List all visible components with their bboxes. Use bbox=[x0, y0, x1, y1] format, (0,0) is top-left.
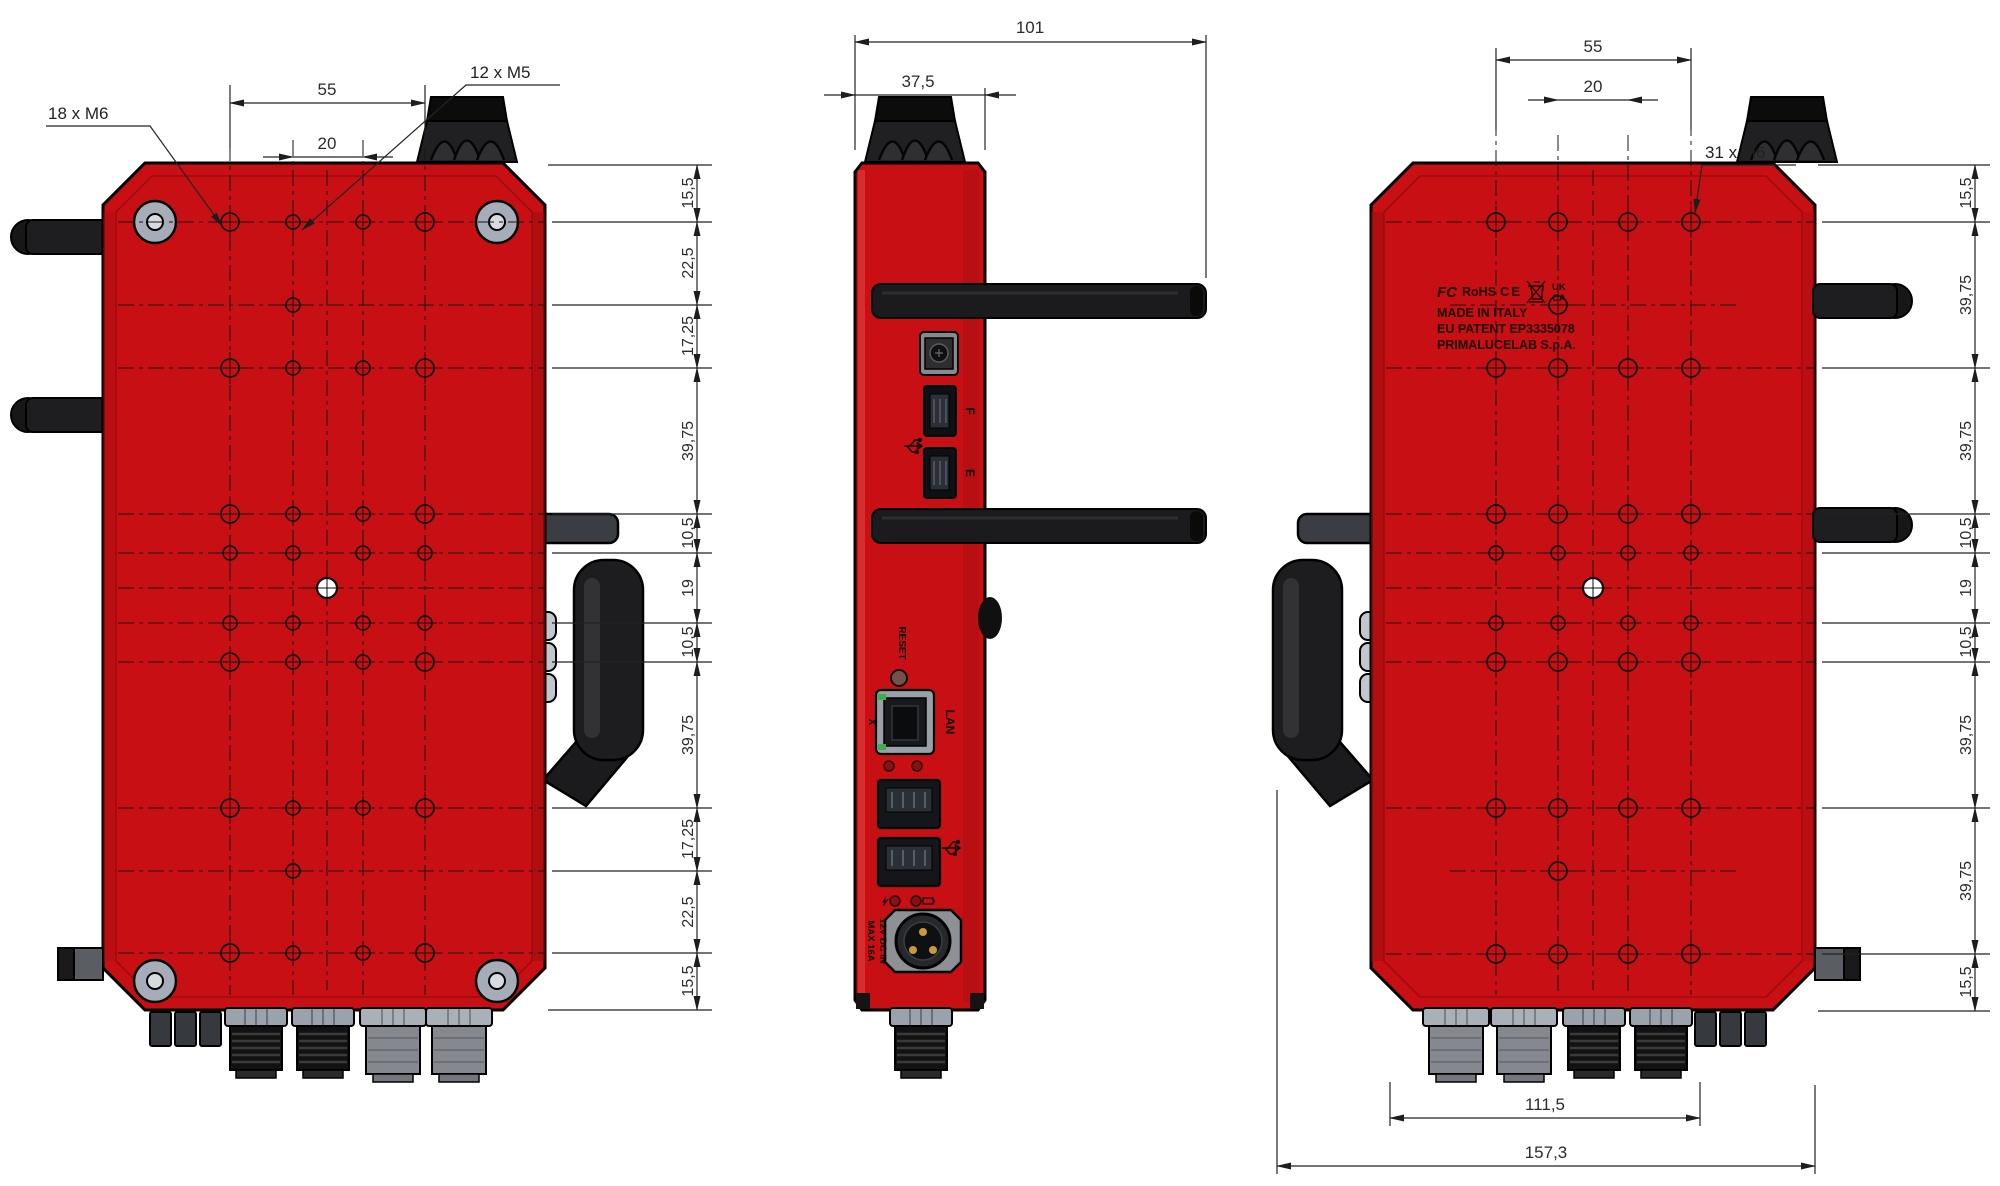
usb-port-label-e: E bbox=[963, 469, 977, 477]
dim-20: 20 bbox=[1584, 77, 1603, 96]
dim-label: 39,75 bbox=[1958, 275, 1975, 315]
edge-notch bbox=[978, 597, 1002, 639]
cert-rohs: RoHS bbox=[1462, 285, 1496, 299]
bottom-connector-side-view bbox=[890, 1008, 952, 1078]
status-led bbox=[884, 761, 894, 771]
usb2-port-1 bbox=[878, 780, 940, 828]
dim-label: 10,5 bbox=[680, 517, 697, 548]
marking-line-2: EU PATENT EP3335078 bbox=[1437, 322, 1575, 336]
dim-label: 19 bbox=[1958, 579, 1975, 597]
reset-button bbox=[891, 670, 907, 686]
dim-label: 10,5 bbox=[1958, 626, 1975, 657]
corner-screw bbox=[476, 960, 518, 1002]
bottom-view: FC RoHS CE UK CA MADE IN ITALY EU PATENT… bbox=[1273, 37, 1990, 1174]
leader-31xM6: 31 x M6 bbox=[1705, 143, 1765, 162]
side-stub-connector bbox=[1815, 948, 1860, 980]
dim-55: 55 bbox=[1584, 37, 1603, 56]
power-label-2: MAX 16A bbox=[865, 920, 876, 961]
dim-111-5: 111,5 bbox=[1525, 1095, 1565, 1114]
antenna-right-1 bbox=[1813, 284, 1912, 318]
dim-label: 15,5 bbox=[680, 177, 697, 208]
dim-label: 39,75 bbox=[1958, 861, 1975, 901]
dim-label: 15,5 bbox=[680, 965, 697, 996]
antenna-left-1 bbox=[11, 220, 110, 254]
dim-37-5: 37,5 bbox=[901, 72, 934, 91]
status-led bbox=[890, 896, 900, 906]
dim-label: 17,25 bbox=[680, 819, 697, 859]
dim-label: 22,5 bbox=[680, 247, 697, 278]
marking-line-3: PRIMALUCELAB S.p.A. bbox=[1437, 338, 1576, 352]
dim-label: 10,5 bbox=[680, 626, 697, 657]
power-label-1: 12V DC IN bbox=[877, 918, 888, 964]
lan-x-label: X bbox=[866, 719, 877, 726]
cert-uk: UK bbox=[1552, 282, 1566, 293]
dim-label: 17,25 bbox=[680, 316, 697, 356]
side-view: F E RESET LAN X bbox=[824, 18, 1206, 1078]
dim-label: 39,75 bbox=[1958, 715, 1975, 755]
lan-label: LAN bbox=[943, 710, 957, 735]
leader-18xM6: 18 x M6 bbox=[48, 104, 108, 123]
dim-label: 15,5 bbox=[1958, 177, 1975, 208]
dim-55: 55 bbox=[318, 80, 337, 99]
leader-12xM5: 12 x M5 bbox=[470, 63, 530, 82]
dim-20: 20 bbox=[318, 134, 337, 153]
dim-label: 15,5 bbox=[1958, 966, 1975, 997]
drawing-canvas: 15,5 22,5 17,25 39,75 10,5 19 10,5 39,75… bbox=[0, 0, 2000, 1186]
dim-label: 39,75 bbox=[680, 421, 697, 461]
dim-label: 22,5 bbox=[680, 896, 697, 927]
top-view: 15,5 22,5 17,25 39,75 10,5 19 10,5 39,75… bbox=[11, 63, 712, 1082]
status-led bbox=[911, 896, 921, 906]
status-led bbox=[912, 761, 922, 771]
lan-port bbox=[876, 690, 934, 754]
antenna-knob-top-view bbox=[417, 97, 517, 162]
antenna-right-2 bbox=[1813, 508, 1912, 542]
antenna-left-2 bbox=[11, 398, 110, 432]
usb-port-label-f: F bbox=[963, 407, 977, 414]
dim-label: 19 bbox=[680, 579, 697, 597]
dim-157-3: 157,3 bbox=[1525, 1143, 1568, 1162]
usb3-port-f bbox=[924, 386, 956, 436]
dim-label: 10,5 bbox=[1958, 517, 1975, 548]
bottom-connectors-bottom-view bbox=[1423, 1008, 1766, 1082]
reset-label: RESET bbox=[896, 626, 907, 659]
technical-drawing: 15,5 22,5 17,25 39,75 10,5 19 10,5 39,75… bbox=[0, 0, 2000, 1186]
cert-fcc: FC bbox=[1437, 284, 1458, 301]
power-connector bbox=[885, 910, 961, 972]
antenna-side-1 bbox=[872, 284, 1206, 318]
usb2-port-2 bbox=[878, 838, 940, 886]
cert-ce: CE bbox=[1500, 284, 1522, 299]
marking-line-1: MADE IN ITALY bbox=[1437, 306, 1528, 320]
antenna-knob-side-view bbox=[865, 97, 965, 162]
dim-label: 39,75 bbox=[680, 715, 697, 755]
antenna-side-2 bbox=[872, 509, 1206, 543]
dim-101: 101 bbox=[1016, 18, 1044, 37]
dim-label: 39,75 bbox=[1958, 421, 1975, 461]
dc-jack bbox=[920, 332, 958, 375]
usb3-port-e bbox=[924, 448, 956, 498]
corner-screw bbox=[134, 960, 176, 1002]
